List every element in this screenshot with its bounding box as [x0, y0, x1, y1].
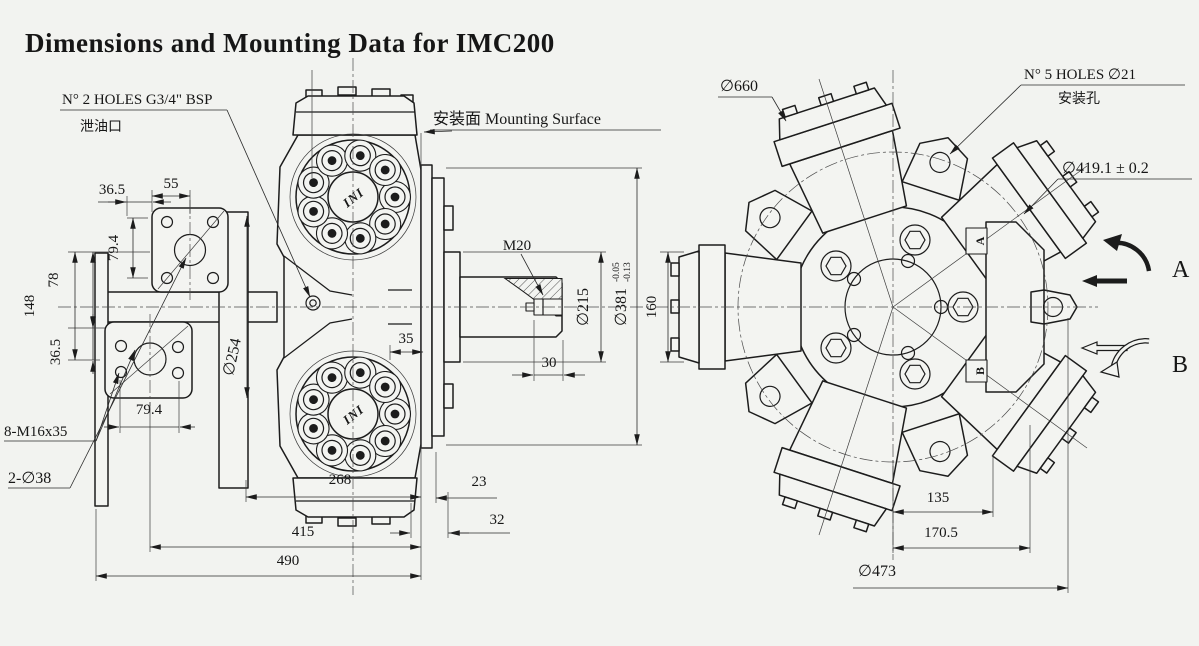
side-section-view	[58, 58, 650, 595]
drawing-page: INI Dimensions and Mounting Data for IMC…	[0, 0, 1199, 646]
dim-160: 160	[644, 296, 660, 319]
dim-78: 78	[46, 273, 62, 288]
dim-35: 35	[399, 331, 414, 347]
dim-55: 55	[164, 176, 179, 192]
dim-473: ∅473	[858, 563, 896, 580]
callout-419: ∅419.1 ± 0.2	[1062, 160, 1149, 177]
callout-bsp: N° 2 HOLES G3/4" BSP	[62, 92, 212, 108]
bottom-cylinder-cap	[293, 478, 417, 526]
callout-mounting-surface: 安装面 Mounting Surface	[433, 110, 601, 128]
callout-5-holes-cn: 安装孔	[1058, 91, 1100, 107]
dim-135: 135	[927, 490, 950, 506]
dim-381-tol-top: -0.05	[612, 262, 622, 282]
mounting-flange	[421, 165, 432, 448]
dim-30: 30	[542, 355, 557, 371]
dim-32: 32	[490, 512, 505, 528]
dim-415: 415	[292, 524, 315, 540]
rotation-direction-a: A	[1082, 234, 1190, 287]
dim-36-5-side: 36.5	[48, 339, 64, 365]
dim-23: 23	[472, 474, 487, 490]
dim-381-group: ∅381 -0.05 -0.13	[612, 262, 633, 326]
dim-381: ∅381	[613, 288, 630, 326]
callout-holes: 2-∅38	[8, 470, 51, 487]
callout-5-holes: N° 5 HOLES ∅21	[1024, 67, 1136, 83]
page-title: Dimensions and Mounting Data for IMC200	[25, 28, 555, 58]
dim-148: 148	[22, 295, 38, 318]
port-a-label: A	[973, 236, 987, 245]
flow-arrow-a-icon	[1082, 275, 1127, 287]
dim-79-4-bottom: 79.4	[136, 402, 163, 418]
front-view: A B	[655, 70, 1109, 560]
dim-268: 268	[329, 472, 352, 488]
dim-170-5: 170.5	[924, 525, 958, 541]
rotation-direction-b: B	[1082, 341, 1188, 378]
callout-bsp-cn: 泄油口	[80, 119, 122, 135]
rotation-a-label: A	[1172, 257, 1190, 283]
rotate-ccw-arrow-icon	[1113, 243, 1149, 271]
dim-36-5-top: 36.5	[99, 182, 125, 198]
callout-660: ∅660	[720, 78, 758, 95]
rotation-b-label: B	[1172, 352, 1188, 378]
dim-490: 490	[277, 553, 300, 569]
top-cylinder-cap	[293, 87, 417, 135]
callout-thread: M20	[503, 238, 531, 254]
dim-79-4-side: 79.4	[106, 234, 122, 261]
dim-215: ∅215	[575, 288, 592, 326]
port-b-label: B	[973, 367, 987, 375]
engineering-drawing-canvas: INI Dimensions and Mounting Data for IMC…	[0, 0, 1199, 646]
dim-381-tol-bottom: -0.13	[623, 262, 633, 282]
callout-bolts: 8-M16x35	[4, 424, 67, 440]
